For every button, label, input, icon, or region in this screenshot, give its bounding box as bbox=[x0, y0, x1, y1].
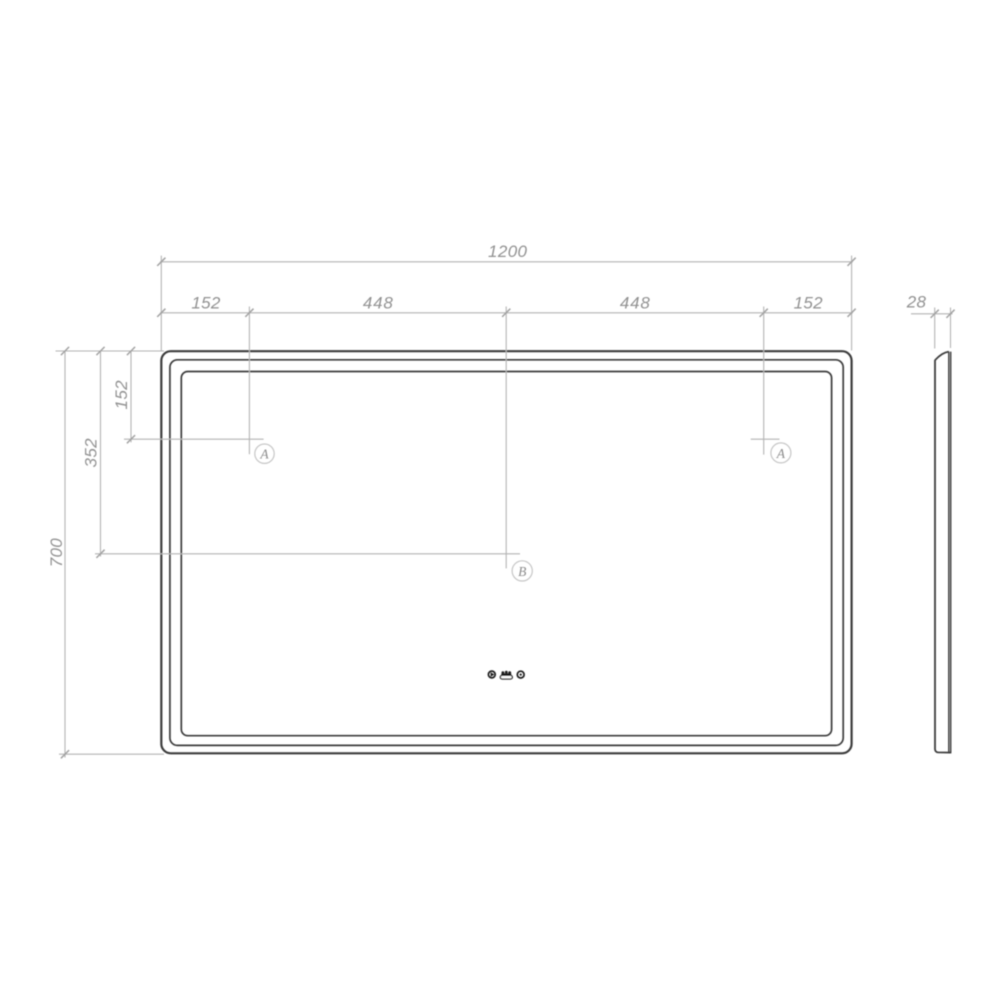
svg-text:448: 448 bbox=[363, 294, 394, 313]
svg-text:152: 152 bbox=[794, 294, 824, 313]
svg-text:448: 448 bbox=[620, 294, 651, 313]
svg-text:A: A bbox=[259, 447, 269, 462]
svg-text:152: 152 bbox=[112, 380, 131, 410]
svg-text:A: A bbox=[776, 446, 786, 461]
svg-text:352: 352 bbox=[82, 438, 101, 468]
svg-text:152: 152 bbox=[191, 294, 221, 313]
svg-text:28: 28 bbox=[906, 293, 927, 312]
svg-text:700: 700 bbox=[47, 538, 66, 568]
svg-text:B: B bbox=[518, 564, 526, 579]
svg-text:1200: 1200 bbox=[488, 242, 528, 261]
